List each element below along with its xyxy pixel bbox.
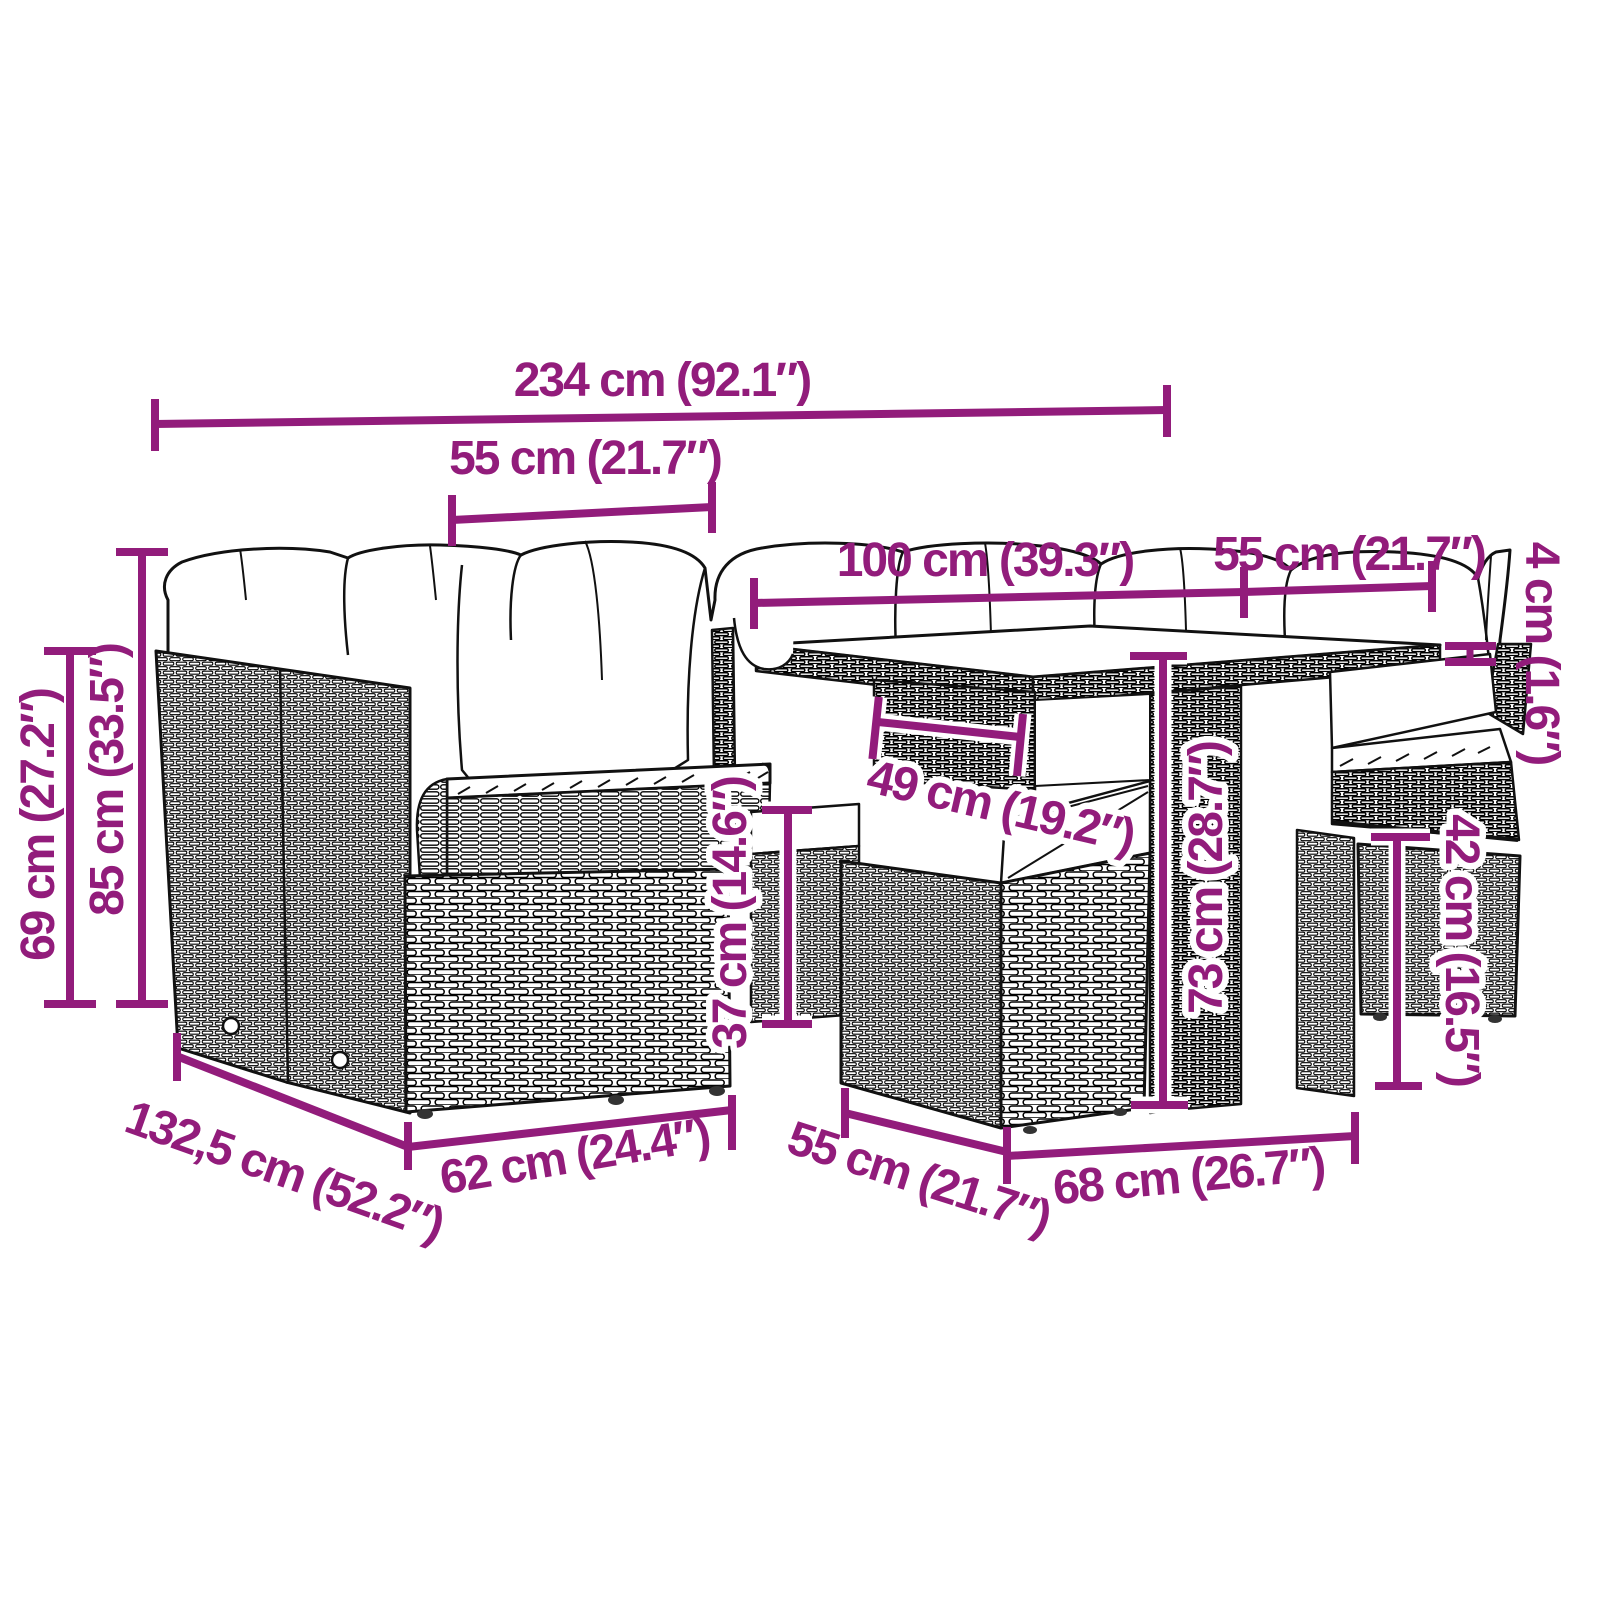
svg-text:55 cm (21.7″): 55 cm (21.7″): [1213, 528, 1485, 581]
svg-text:55 cm (21.7″): 55 cm (21.7″): [449, 432, 721, 485]
svg-text:42 cm (16.5″): 42 cm (16.5″): [1435, 814, 1488, 1086]
svg-text:69 cm (27.2″): 69 cm (27.2″): [12, 689, 65, 961]
svg-text:37 cm (14.6″): 37 cm (14.6″): [704, 777, 757, 1049]
svg-text:100 cm (39.3″): 100 cm (39.3″): [837, 534, 1134, 587]
svg-text:4 cm (1.6″): 4 cm (1.6″): [1515, 542, 1568, 764]
svg-text:85 cm (33.5″): 85 cm (33.5″): [81, 644, 134, 916]
svg-text:73 cm (28.7″): 73 cm (28.7″): [1180, 742, 1233, 1014]
svg-text:234 cm (92.1″): 234 cm (92.1″): [514, 354, 811, 407]
